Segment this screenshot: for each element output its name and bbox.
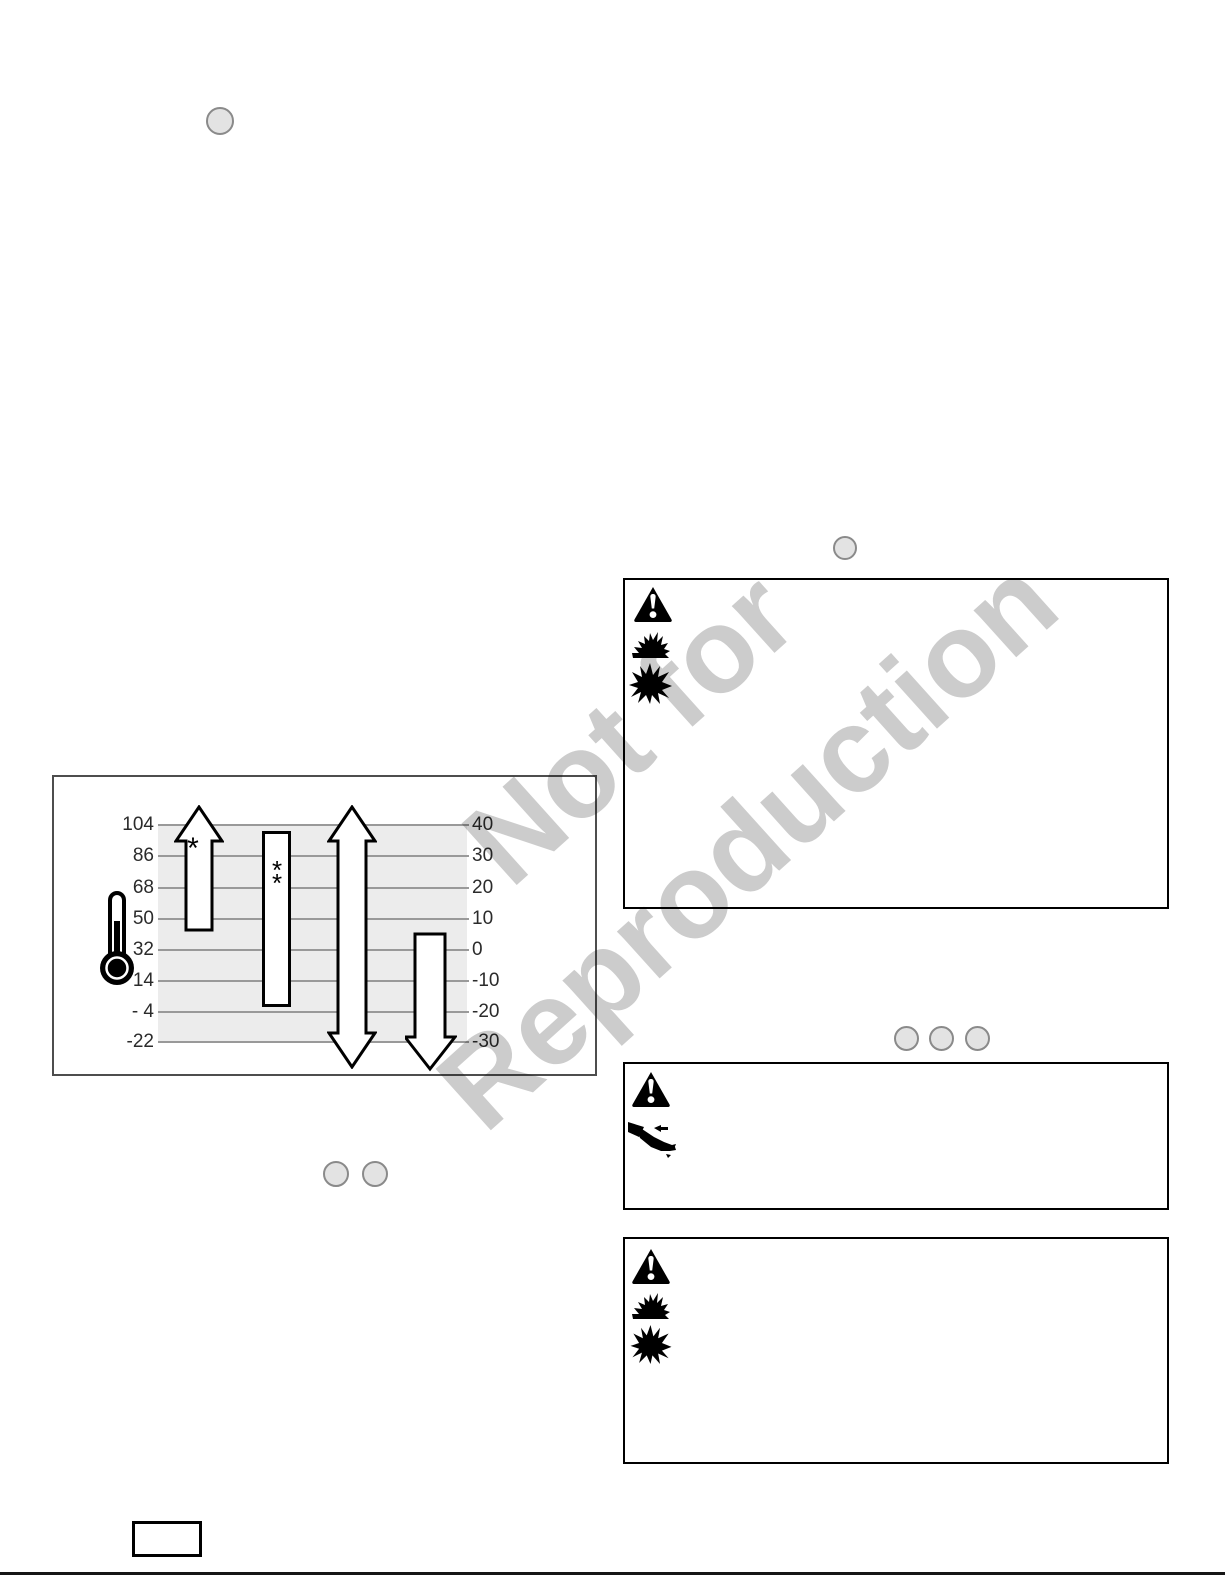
callout-circle-pair-b <box>362 1161 388 1187</box>
fahrenheit-tick: 86 <box>68 845 154 867</box>
fahrenheit-tick: 104 <box>68 814 154 836</box>
callout-circle-box2-b <box>929 1026 954 1051</box>
callout-circle-pair-a <box>323 1161 349 1187</box>
range-marker-star: * <box>166 834 220 864</box>
celsius-tick: 20 <box>472 877 558 899</box>
thermometer-icon <box>98 889 136 987</box>
fire-icon <box>632 1292 672 1320</box>
explosion-icon <box>630 1324 672 1364</box>
celsius-tick: -20 <box>472 1001 558 1023</box>
callout-circle-top-left <box>206 107 234 135</box>
range-double-arrow <box>327 805 377 1069</box>
warning-box-fuel-bottom <box>623 1237 1169 1464</box>
fahrenheit-tick: - 4 <box>68 1001 154 1023</box>
fluid-injection-icon <box>628 1120 676 1158</box>
explosion-icon <box>629 662 672 704</box>
warning-triangle-icon <box>633 585 673 623</box>
warning-box-fuel-top <box>623 578 1169 909</box>
range-down-arrow <box>405 932 457 1072</box>
range-up-arrow <box>174 805 224 932</box>
callout-circle-box1 <box>833 536 857 560</box>
callout-circle-box2-a <box>894 1026 919 1051</box>
celsius-tick: -30 <box>472 1031 558 1053</box>
footer-page-box <box>132 1521 202 1557</box>
celsius-tick: 40 <box>472 814 558 836</box>
fire-icon <box>632 631 672 659</box>
page-bottom-rule <box>0 1572 1225 1575</box>
warning-triangle-icon <box>631 1247 671 1285</box>
warning-box-injection <box>623 1062 1169 1210</box>
celsius-tick: 30 <box>472 845 558 867</box>
celsius-tick: -10 <box>472 970 558 992</box>
temperature-chart: 104 86 68 50 32 14 - 4 -22 40 30 20 10 0… <box>52 775 597 1076</box>
celsius-tick: 10 <box>472 908 558 930</box>
range-marker-double-star: ** <box>269 864 285 890</box>
fahrenheit-tick: -22 <box>68 1031 154 1053</box>
callout-circle-box2-c <box>965 1026 990 1051</box>
warning-triangle-icon <box>631 1070 671 1108</box>
celsius-tick: 0 <box>472 939 558 961</box>
